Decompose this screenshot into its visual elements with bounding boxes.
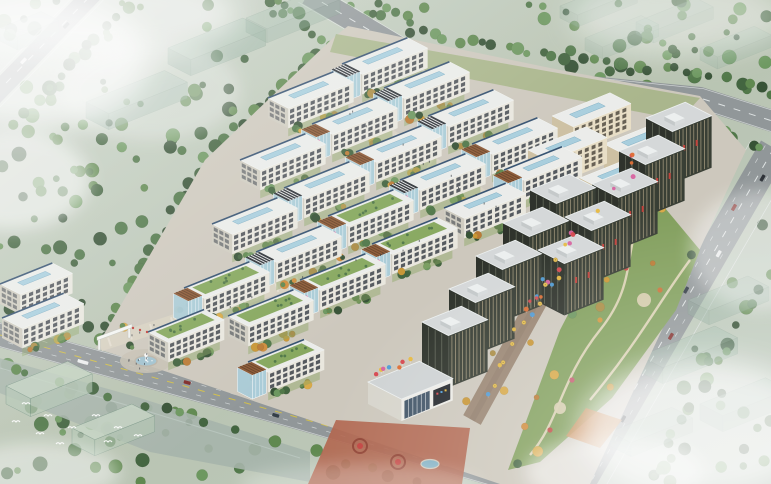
viewport [0, 0, 771, 484]
atmosphere-overlay [0, 0, 771, 484]
cool-tint-overlay [0, 0, 771, 484]
aerial-site-rendering [0, 0, 771, 484]
